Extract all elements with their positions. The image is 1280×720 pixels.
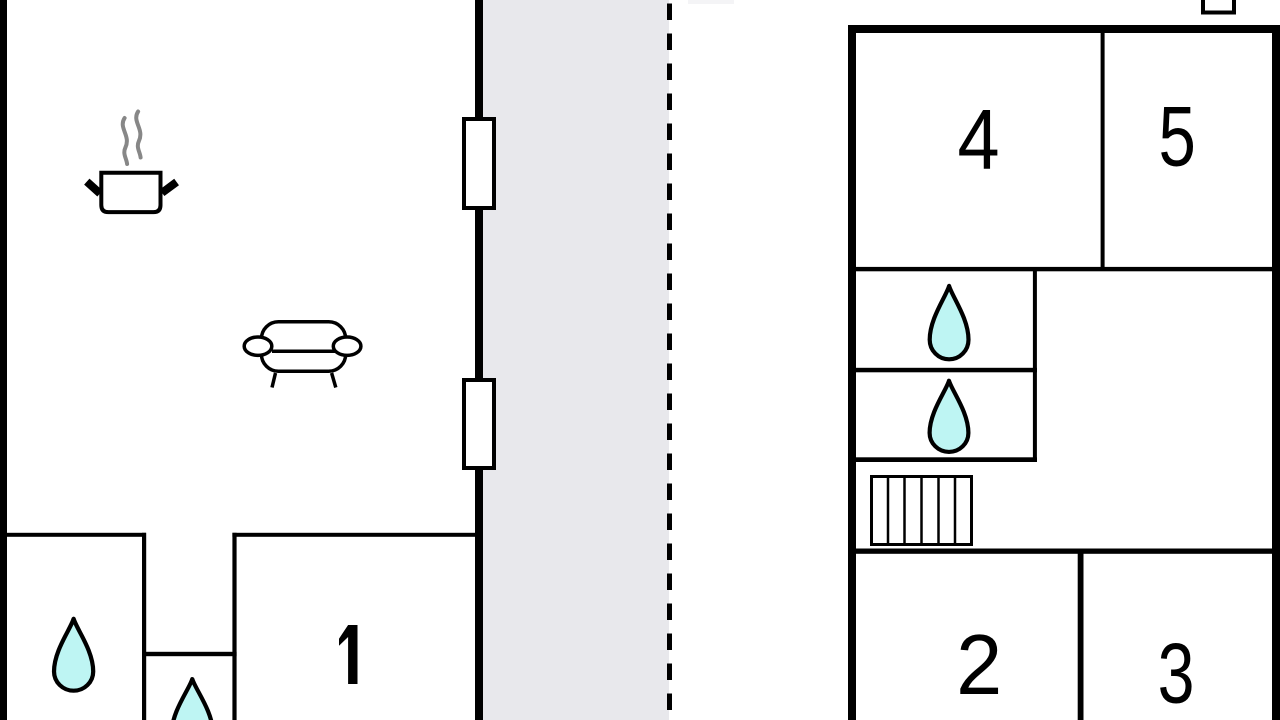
svg-text:3: 3 [1158,627,1195,720]
svg-text:2: 2 [956,617,1002,712]
svg-text:4: 4 [957,93,999,188]
svg-text:5: 5 [1159,90,1196,184]
